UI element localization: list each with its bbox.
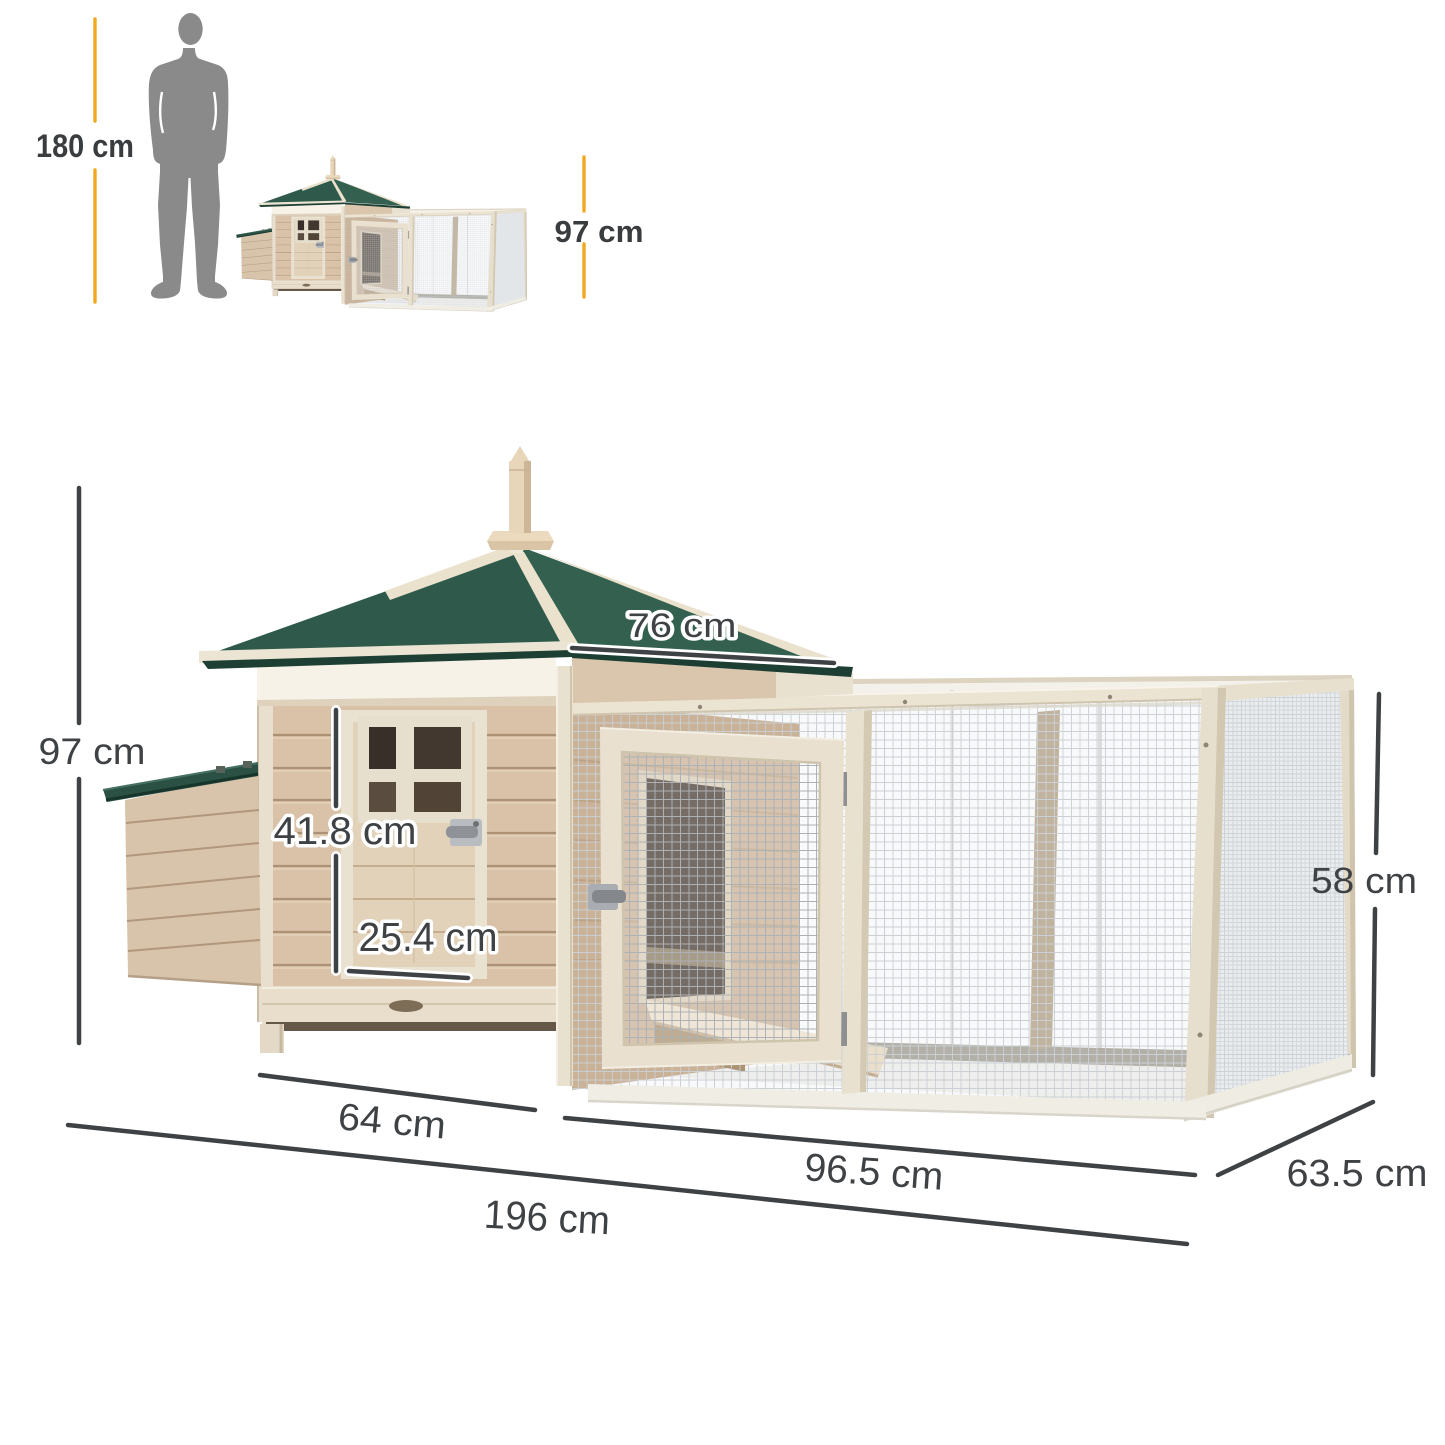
svg-text:97 cm: 97 cm	[555, 214, 644, 249]
svg-text:180 cm: 180 cm	[36, 128, 134, 164]
svg-text:97 cm: 97 cm	[39, 731, 146, 772]
svg-text:63.5 cm: 63.5 cm	[1287, 1153, 1428, 1195]
svg-text:25.4 cm: 25.4 cm	[359, 914, 498, 960]
svg-text:58 cm: 58 cm	[1311, 860, 1417, 901]
svg-text:41.8 cm: 41.8 cm	[274, 810, 417, 853]
svg-text:196 cm: 196 cm	[483, 1193, 611, 1244]
svg-text:76 cm: 76 cm	[628, 607, 737, 645]
